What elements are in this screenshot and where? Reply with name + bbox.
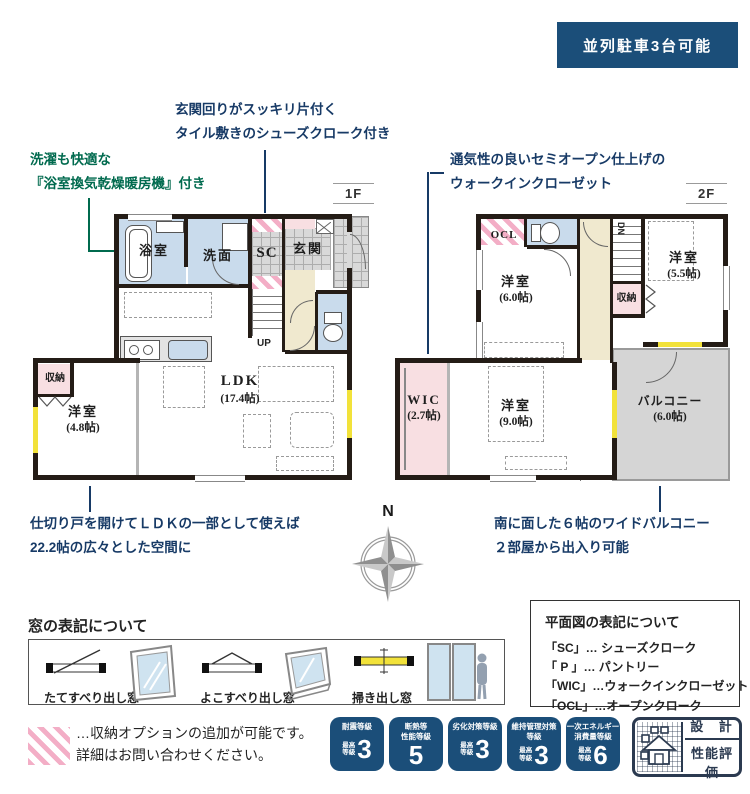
door-arc <box>544 249 571 276</box>
room-label-sc: SC <box>252 244 282 264</box>
parking-banner: 並列駐車3台可能 <box>557 22 738 68</box>
sliding-door-picture-icon <box>426 642 494 704</box>
window-cap <box>702 342 706 347</box>
badge-deterioration: 劣化対策等級 最高等級3 <box>448 717 502 771</box>
annotation-bath-dryer: 洗濯も快適な 『浴室換気乾燥暖房機』付き <box>30 148 206 195</box>
vanity-sink-icon <box>222 223 248 251</box>
room-label-west55: 洋室 (5.5帖) <box>648 250 720 282</box>
option-hatch-swatch <box>28 727 70 765</box>
table-outline <box>290 412 334 448</box>
window-marker <box>490 475 536 482</box>
badge-energy: 一次エネルギー消費量等級 最高等級6 <box>566 717 620 771</box>
storage-option-note: …収納オプションの追加が可能です。 詳細はお問い合わせください。 <box>76 722 313 767</box>
void-x-box <box>316 219 334 234</box>
tv-board-outline <box>276 456 334 471</box>
window-marker <box>723 266 730 310</box>
wall-segment <box>285 350 352 354</box>
wall-segment <box>114 214 119 363</box>
entrance-option-closet <box>285 219 315 229</box>
plan-legend-box: 平面図の表記について 「SC」… シューズクローク 「 P 」… パントリー 「… <box>530 600 740 707</box>
room-label-wic: WIC (2.7帖) <box>398 392 450 424</box>
leader-line <box>88 250 114 252</box>
burner-icon <box>143 345 153 355</box>
plan-legend-item: 「SC」… シューズクローク <box>545 639 739 658</box>
desk-outline <box>484 342 564 358</box>
window-legend-label: たてすべり出し窓 <box>44 689 139 706</box>
room-label-west6: 洋室 (6.0帖) <box>478 274 554 306</box>
wall-segment <box>395 358 582 363</box>
sweep-out-window <box>612 390 617 438</box>
bath-counter-icon <box>156 221 184 233</box>
room-label-bath: 浴室 <box>126 243 182 260</box>
leader-line <box>264 150 266 213</box>
window-legend-label: 掃き出し窓 <box>352 689 416 706</box>
room-label-storage2: 収納 <box>612 292 641 305</box>
plan-legend-title: 平面図の表記について <box>545 611 739 631</box>
window-cap <box>347 386 352 390</box>
house-icon <box>637 722 681 770</box>
window-marker <box>195 475 245 482</box>
wall-segment <box>114 284 252 288</box>
window-cap <box>33 403 38 407</box>
wall-segment <box>282 219 285 352</box>
seal-grid <box>637 722 683 772</box>
room-label-balcony: バルコニー (6.0帖) <box>626 394 714 425</box>
compass-north-label: N <box>382 503 394 520</box>
awning-window-picture-icon <box>278 644 334 702</box>
wall-segment <box>577 219 580 360</box>
awning-window-symbol-icon <box>200 648 264 674</box>
plan-legend-item: 「 P 」… パントリー <box>545 658 739 677</box>
wall-segment <box>476 214 728 219</box>
annotation-ldk: 仕切り戸を開けてＬＤＫの一部として使えば 22.2帖の広々とした空間に <box>30 512 300 559</box>
stairs-up <box>252 289 284 336</box>
leader-line <box>89 486 91 512</box>
sweep-out-window-symbol-icon <box>352 648 416 674</box>
toilet-bowl-icon <box>323 324 343 342</box>
floor-label-2f: 2F <box>686 183 727 204</box>
room-label-ldk: LDK (17.4帖) <box>200 372 280 406</box>
window-legend-title: 窓の表記について <box>28 615 148 636</box>
window-marker <box>128 214 172 221</box>
badge-seismic: 耐震等級 最高等級3 <box>330 717 384 771</box>
room-label-wash: 洗面 <box>190 248 246 265</box>
sweep-out-window <box>33 407 38 453</box>
design-performance-seal: 設 計 性能評価 <box>632 717 742 777</box>
window-cap <box>33 453 38 457</box>
wall-segment <box>524 219 527 247</box>
window-marker <box>476 322 483 358</box>
stove-icon <box>124 340 160 360</box>
casement-window-picture-icon <box>128 644 178 702</box>
window-legend-item-1: たてすべり出し窓 <box>44 648 139 706</box>
sweep-out-window <box>658 342 702 347</box>
room-label-west: 洋室 (4.8帖) <box>48 404 118 436</box>
wall-segment <box>610 219 613 363</box>
x-mark-icon <box>317 222 331 233</box>
wall-segment <box>527 245 579 249</box>
dining-table-outline <box>163 366 205 408</box>
door-arc <box>580 480 581 481</box>
shoes-cloak-option-hatch <box>252 276 282 289</box>
leader-line <box>427 172 429 354</box>
stairs-up-label: UP <box>257 338 271 349</box>
badge-insulation: 断熱等性能等級 5 <box>389 717 443 771</box>
wall-segment <box>33 475 352 480</box>
room-label-west9: 洋室 (9.0帖) <box>478 398 554 430</box>
window-cap <box>612 386 617 390</box>
toilet-tank-icon <box>324 312 342 324</box>
badge-maintenance: 維持管理対策等級 最高等級3 <box>507 717 561 771</box>
compass-icon: N <box>348 500 428 610</box>
wall-segment <box>315 292 318 352</box>
window-cap <box>612 438 617 442</box>
casement-window-symbol-icon <box>44 648 108 674</box>
room-label-ocl: OCL <box>484 228 524 242</box>
window-cap <box>654 342 658 347</box>
plan-legend-item: 「WIC」…ウォークインクローゼット <box>545 677 739 696</box>
room-label-storage: 収納 <box>40 372 70 385</box>
annotation-wic: 通気性の良いセミオープン仕上げの ウォークインクローゼット <box>450 148 665 195</box>
kitchen-sink-icon <box>168 340 208 360</box>
cupboard-outline <box>124 292 212 318</box>
stairs-dn-label: DN <box>616 222 626 235</box>
room-label-entrance: 玄関 <box>285 241 331 258</box>
floorplan-flyer: 並列駐車3台可能 玄関回りがスッキリ片付く タイル敷きのシューズクローク付き 洗… <box>0 0 750 794</box>
leader-line <box>430 172 444 174</box>
wall-segment <box>184 219 188 267</box>
seal-text: 設 計 性能評価 <box>685 720 739 774</box>
parking-banner-text: 並列駐車3台可能 <box>583 35 712 56</box>
wall-segment <box>33 358 140 363</box>
closet-folding-door-icon <box>645 284 657 314</box>
floor-label-1f: 1F <box>333 183 374 204</box>
wall-segment <box>70 362 74 397</box>
wall-segment <box>248 288 252 338</box>
shelf-outline <box>505 456 567 470</box>
window-cap <box>347 438 352 442</box>
leader-line <box>88 198 90 252</box>
burner-icon <box>129 345 139 355</box>
sliding-partition <box>136 363 139 475</box>
chair-outline <box>243 414 271 448</box>
leader-line <box>659 486 661 512</box>
window-legend-item-3: 掃き出し窓 <box>352 648 416 706</box>
annotation-balcony: 南に面した６帖のワイドバルコニー ２部屋から出入り可能 <box>494 512 710 559</box>
sweep-out-window <box>347 390 352 438</box>
annotation-shoes-cloak: 玄関回りがスッキリ片付く タイル敷きのシューズクローク付き <box>175 98 390 145</box>
toilet-bowl-icon <box>540 222 560 244</box>
shoes-cloak-option-hatch <box>252 219 282 232</box>
